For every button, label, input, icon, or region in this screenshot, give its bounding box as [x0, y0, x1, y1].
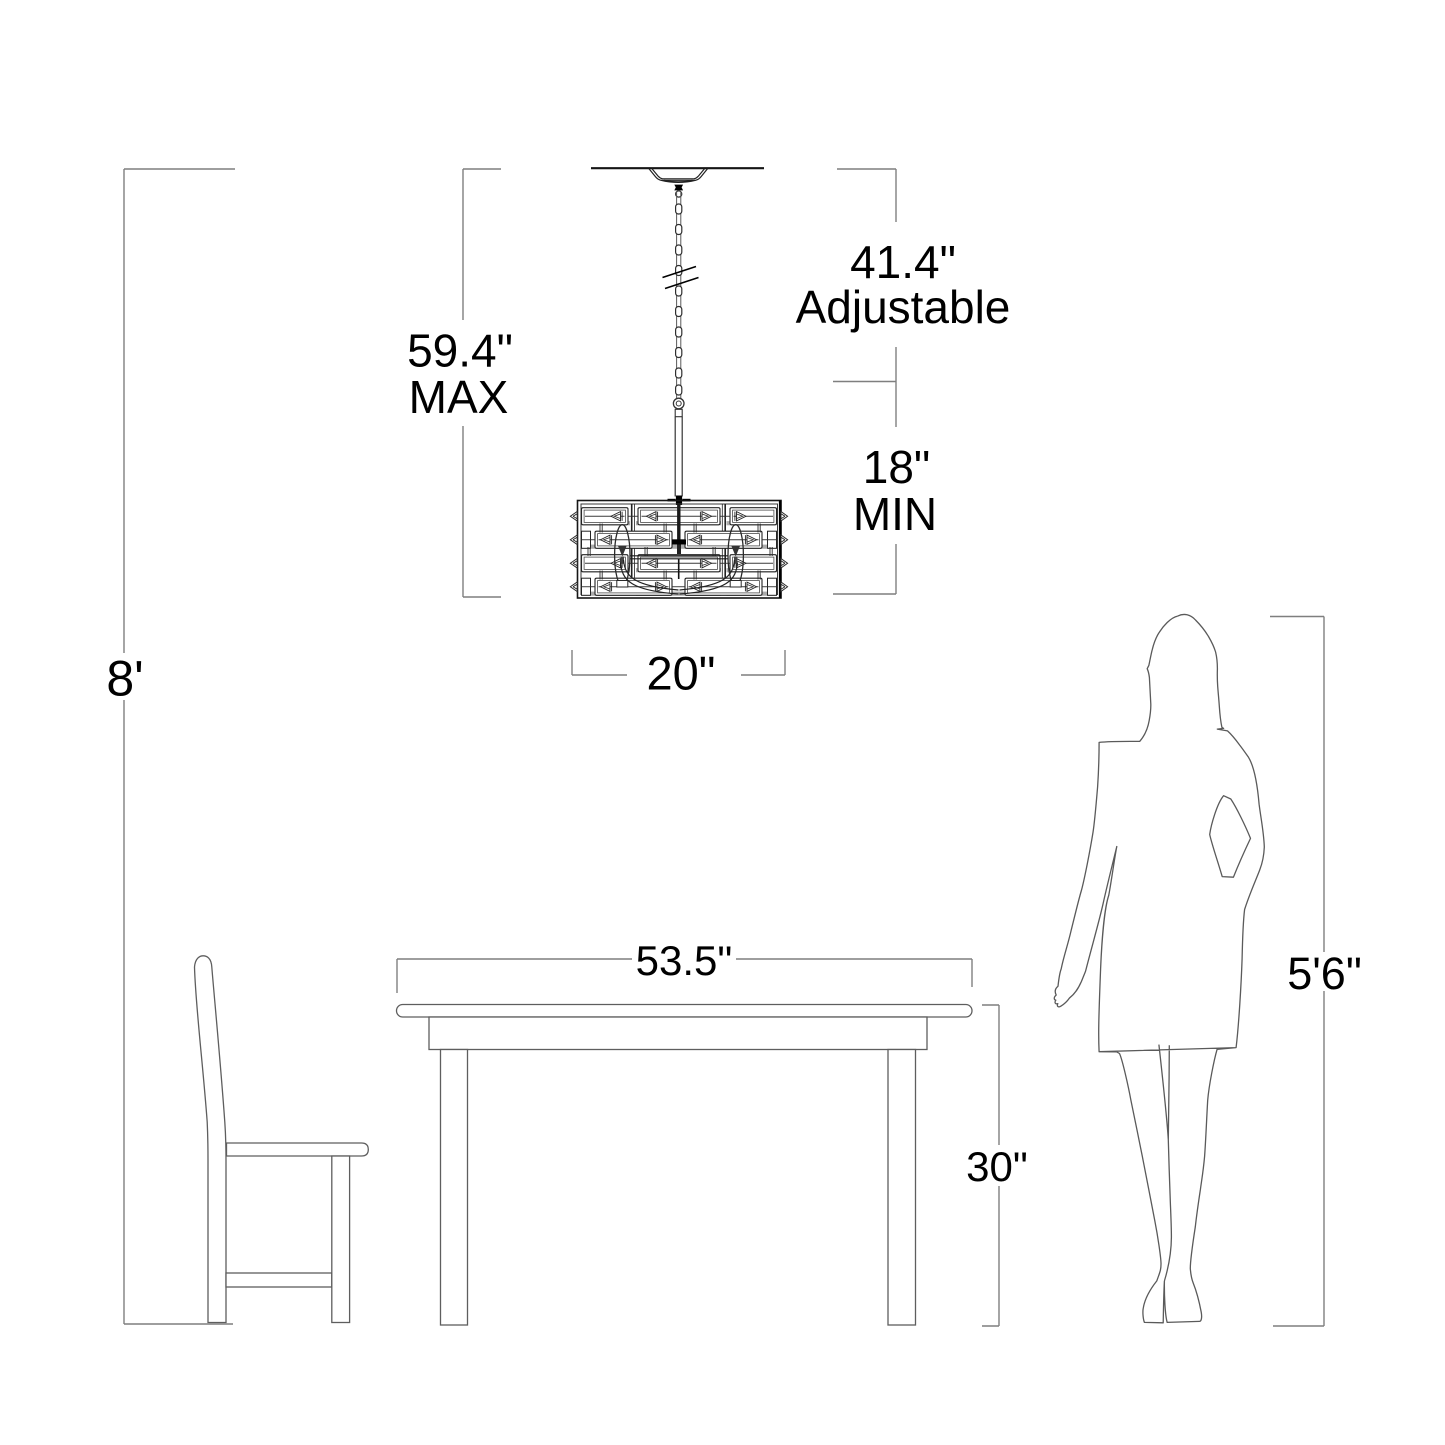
svg-text:5'6": 5'6"	[1287, 948, 1362, 999]
svg-text:MIN: MIN	[853, 488, 937, 540]
svg-text:20": 20"	[647, 647, 716, 700]
svg-text:Adjustable: Adjustable	[796, 281, 1011, 333]
svg-text:30": 30"	[966, 1143, 1028, 1190]
svg-text:8': 8'	[106, 651, 143, 707]
svg-text:18": 18"	[863, 441, 931, 493]
svg-text:MAX: MAX	[409, 371, 509, 423]
svg-text:59.4": 59.4"	[407, 325, 513, 377]
svg-text:53.5": 53.5"	[636, 937, 733, 984]
